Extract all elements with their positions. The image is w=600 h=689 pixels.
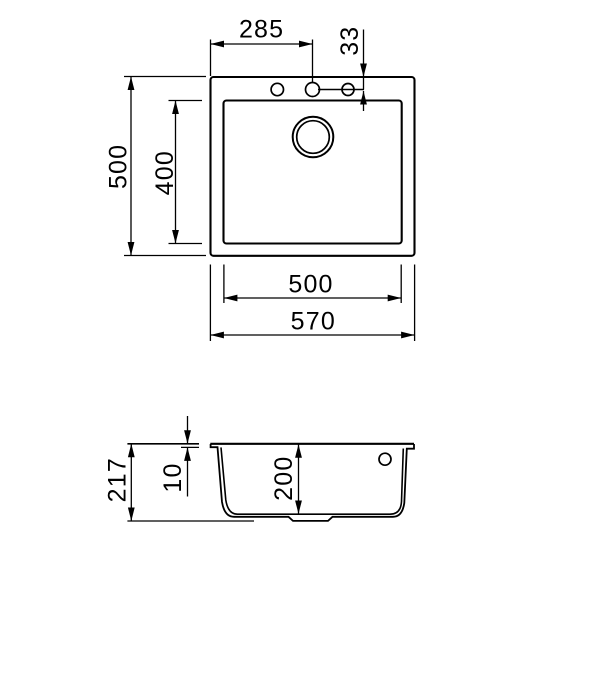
svg-text:500: 500 [105,144,133,189]
svg-text:217: 217 [104,457,132,502]
svg-text:285: 285 [239,16,284,44]
svg-text:500: 500 [288,271,333,299]
svg-text:570: 570 [291,308,336,336]
svg-text:200: 200 [270,456,298,501]
svg-text:33: 33 [336,26,364,56]
svg-text:400: 400 [151,150,179,195]
svg-text:10: 10 [159,462,187,492]
